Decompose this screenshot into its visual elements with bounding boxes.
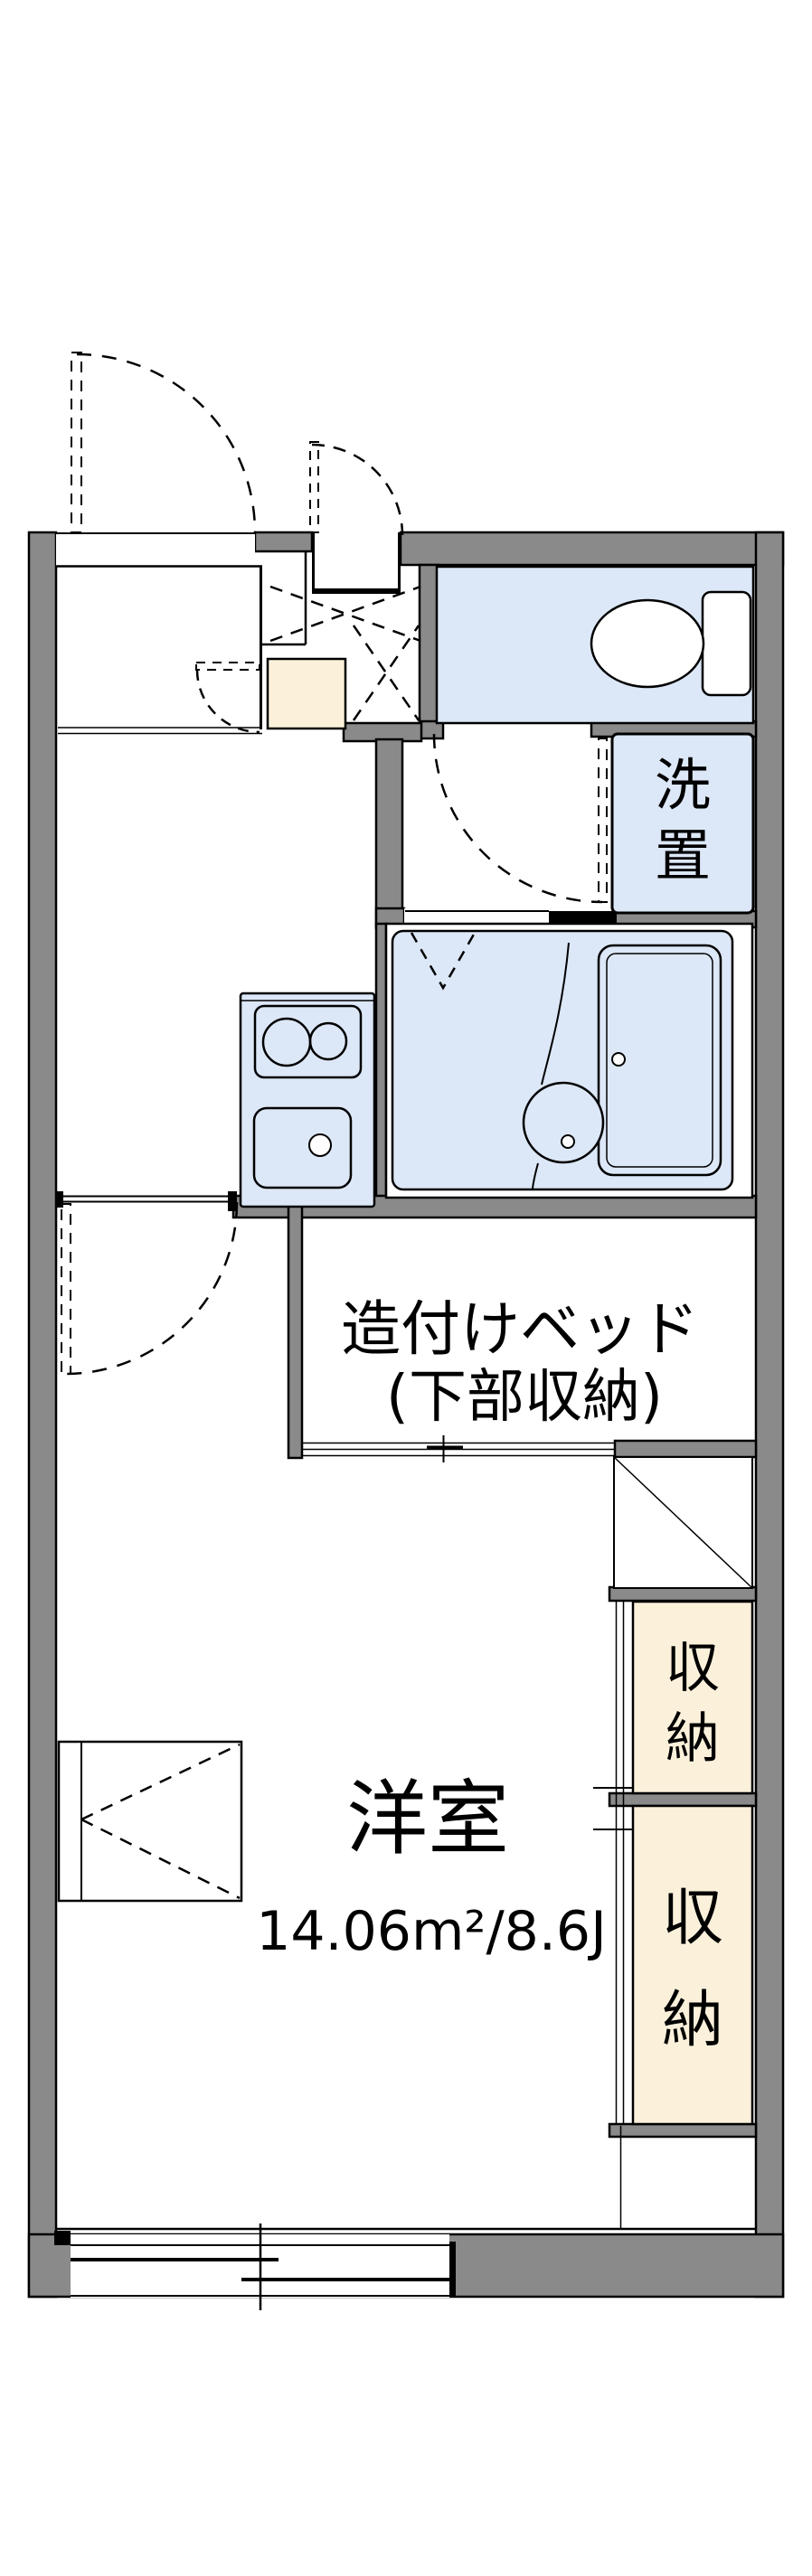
sink-drain [309,1134,331,1156]
fridge-space [614,1457,752,1588]
storage-upper-char2: 納 [666,1707,720,1771]
black-wall-pieces [54,587,617,2298]
roomdoor-cap-left [56,1191,63,1208]
room-door-leaf [61,1204,71,1374]
meterbox-door-arc [312,445,402,535]
toilet-door-leaf [599,738,607,902]
bathtub-drain [612,1053,625,1066]
door-swings [61,353,607,1374]
wall-fridge-bottom [609,1587,756,1601]
wall-hall-left [376,739,402,926]
window-south [71,2223,449,2310]
bed-label-line2: (下部収納) [386,1364,663,1431]
wall-bed-bottom-right [615,1441,756,1457]
entrance-door-arc [77,354,255,532]
bed-label-line1: 造付けベッド [341,1294,699,1364]
wall-top-mid [255,532,312,551]
wall-right [756,532,783,2297]
washbasin-drain [562,1135,574,1148]
toilet-tank [703,592,751,695]
floorplan-drawing: 洗 置 造付けベッド (下部収納) 収 納 収 納 洋室 14.06m²/8.6… [0,0,812,2576]
window-cap-left [54,2231,71,2245]
wall-bath-left [376,924,386,1198]
meterbox-door-leaf [310,442,318,532]
wall-storage-bottom [609,2124,756,2137]
bay-counter [59,1742,241,1901]
entrance-door-leaf [71,353,81,532]
storage-lower-box [633,1806,752,2124]
storage-lower-char2: 納 [662,1985,723,2056]
cabinet-door-arc [197,670,260,732]
toilet-bowl [591,600,703,687]
washer-label-char1: 洗 [655,752,711,818]
entrance-cabinet [268,659,345,729]
room-door-arc [65,1202,237,1374]
toilet-door-arc [434,734,602,902]
cabinet-door-leaf [196,663,260,670]
entrance-opening [56,532,255,567]
floorplan-page: 洗 置 造付けベッド (下部収納) 収 納 収 納 洋室 14.06m²/8.6… [0,0,812,2576]
western-room-area: 14.06m²/8.6J [256,1900,607,1963]
meterbox-niche [312,532,401,588]
wall-left [29,532,56,2297]
washbasin-icon [524,1083,603,1162]
kitchen-counter [241,993,374,1207]
storage-upper-char1: 収 [666,1637,720,1700]
washer-label-char2: 置 [655,823,711,888]
wall-storage-separator [609,1793,756,1806]
wall-top-right [401,532,783,565]
toilet-icon [591,592,751,695]
storage-lower-char1: 収 [662,1883,723,1954]
western-room-label: 洋室 [346,1772,509,1866]
wall-bed-left [288,1205,302,1458]
